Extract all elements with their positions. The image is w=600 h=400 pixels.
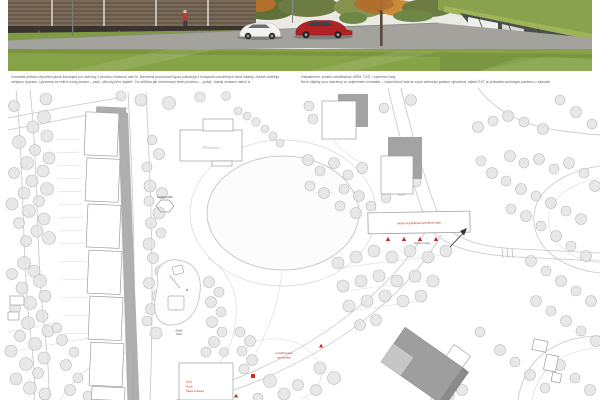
competition-board: Vnímáme potřebu vytvoření jasné koncepce… xyxy=(0,0,600,400)
street-lamp xyxy=(292,0,293,23)
foreground-lawn xyxy=(8,49,592,71)
housing-row xyxy=(73,106,152,400)
red-square-marker xyxy=(251,374,255,378)
label-cvc-1: ČVČ xyxy=(186,379,192,384)
caption-right: charakterem: prostor medláneček, MŠM, ČV… xyxy=(301,75,589,84)
label-playground-2: hřiště xyxy=(176,333,183,336)
label-school: ZŠ Hudcova xyxy=(203,145,220,150)
central-circle-park xyxy=(207,156,359,270)
label-sport-1: revitalizované xyxy=(275,351,293,355)
label-cvc-3: Šipka Lužánky xyxy=(186,388,205,393)
bus-stop: zastávka MHD xyxy=(156,196,174,212)
street-lamp xyxy=(72,0,73,36)
sport-field: revitalizované sportoviště xyxy=(251,344,323,378)
caption-left: Vnímáme potřebu vytvoření jasné koncepce… xyxy=(11,75,293,84)
existing-building-1 xyxy=(322,94,368,139)
label-hall-access: přístup a vstup xyxy=(414,242,430,245)
playground: dětské hřiště xyxy=(155,260,201,336)
photo-rendering xyxy=(8,0,592,71)
school-building: ZŠ Hudcova xyxy=(180,119,242,166)
red-triangle-marker xyxy=(234,394,238,398)
caption-left-line2: veřejnou dopravu. Upravený ve vnitřní vo… xyxy=(11,80,293,85)
label-sport-2: sportoviště xyxy=(277,356,291,360)
caption-left-line1: Vnímáme potřebu vytvoření jasné koncepce… xyxy=(11,75,293,80)
site-plan: ZŠ Hudcova Nová víceúčelová sportovní ha… xyxy=(0,86,600,400)
cvc-pavilion: ČVČ Nová Šipka Lužánky xyxy=(179,363,238,400)
label-sports-hall: Nová víceúčelová sportovní hala xyxy=(397,221,441,226)
red-triangle-marker xyxy=(319,344,323,348)
caption-right-line2: Nové objekty jsou navrženy ve vzájemném … xyxy=(301,80,589,85)
entrance-markers xyxy=(386,237,438,241)
sports-hall: Nová víceúčelová sportovní hala přístup … xyxy=(368,211,470,247)
label-bus-stop: zastávka MHD xyxy=(157,196,173,199)
label-cvc-2: Nová xyxy=(186,385,193,389)
access-paths xyxy=(56,139,90,334)
